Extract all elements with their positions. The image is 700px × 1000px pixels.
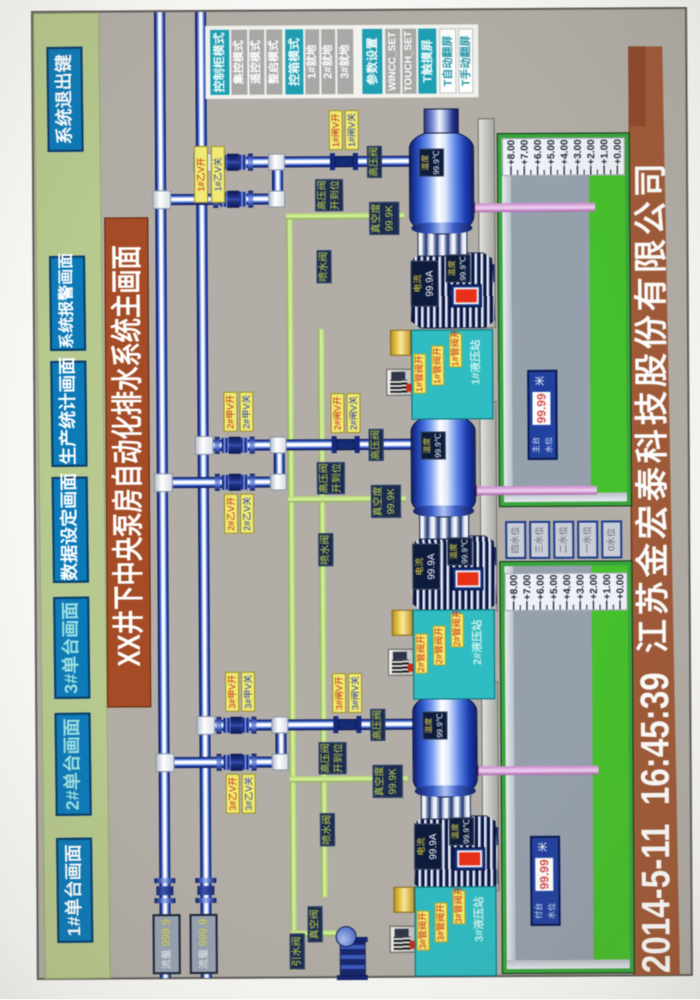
svg-text:+0.00: +0.00 <box>615 574 626 600</box>
svg-text:+2.00: +2.00 <box>586 139 597 165</box>
svg-text:+4.00: +4.00 <box>559 139 570 165</box>
svg-text:+5.00: +5.00 <box>546 139 557 165</box>
svg-text:+2.00: +2.00 <box>589 574 600 600</box>
svg-text:+8.00: +8.00 <box>509 574 520 600</box>
svg-text:+7.00: +7.00 <box>522 574 533 600</box>
svg-text:+6.00: +6.00 <box>533 139 544 165</box>
svg-text:+5.00: +5.00 <box>549 574 560 600</box>
svg-text:+6.00: +6.00 <box>536 574 547 600</box>
svg-text:+3.00: +3.00 <box>573 139 584 165</box>
svg-text:+1.00: +1.00 <box>599 139 610 165</box>
svg-text:+0.00: +0.00 <box>613 139 624 165</box>
svg-text:+3.00: +3.00 <box>575 574 586 600</box>
svg-text:+8.00: +8.00 <box>506 139 517 165</box>
svg-text:+7.00: +7.00 <box>520 139 531 165</box>
svg-text:+1.00: +1.00 <box>602 574 613 600</box>
svg-text:+4.00: +4.00 <box>562 574 573 600</box>
